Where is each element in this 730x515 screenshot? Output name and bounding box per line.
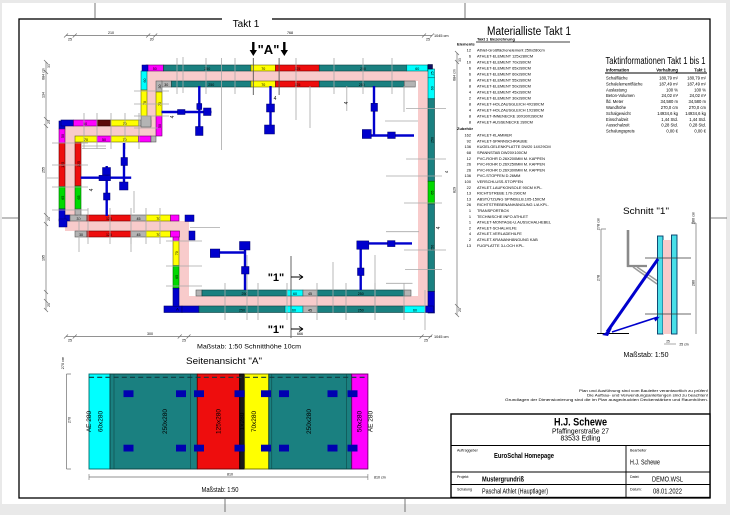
svg-text:Grundlagen der Dimensionierung: Grundlagen der Dimensionierung sind die … bbox=[505, 397, 708, 402]
svg-text:50: 50 bbox=[61, 134, 65, 138]
svg-text:Maßstab: 1:50: Maßstab: 1:50 bbox=[624, 352, 669, 359]
svg-text:Ausschalzeit: Ausschalzeit bbox=[606, 123, 630, 128]
svg-text:25: 25 bbox=[666, 340, 670, 344]
svg-text:250: 250 bbox=[359, 83, 365, 87]
svg-text:EuroSchal Homepage: EuroSchal Homepage bbox=[494, 453, 554, 460]
svg-text:250: 250 bbox=[208, 83, 214, 87]
svg-text:ATHLET-ELEMENT 30x280CM: ATHLET-ELEMENT 30x280CM bbox=[477, 96, 531, 101]
svg-text:25: 25 bbox=[68, 38, 72, 42]
svg-text:Schalgewicht: Schalgewicht bbox=[606, 111, 632, 116]
svg-text:50: 50 bbox=[102, 138, 106, 142]
svg-text:ATHLET-KLAMMER: ATHLET-KLAMMER bbox=[477, 133, 512, 138]
svg-text:270,0 cm: 270,0 cm bbox=[689, 105, 707, 110]
svg-text:45: 45 bbox=[137, 233, 141, 237]
svg-text:26: 26 bbox=[467, 162, 471, 167]
svg-text:1,44 Std.: 1,44 Std. bbox=[689, 117, 706, 122]
svg-text:33: 33 bbox=[458, 58, 462, 62]
svg-text:187,49 m²: 187,49 m² bbox=[687, 81, 706, 86]
svg-text:Vorhaltung: Vorhaltung bbox=[656, 68, 678, 73]
svg-text:250: 250 bbox=[204, 67, 210, 71]
svg-text:TECHNISCHE INFO ATHLET: TECHNISCHE INFO ATHLET bbox=[477, 214, 529, 219]
svg-text:A: A bbox=[176, 307, 179, 312]
svg-text:RICHTSTREBE 170-290CM: RICHTSTREBE 170-290CM bbox=[477, 191, 526, 196]
svg-text:100: 100 bbox=[465, 179, 472, 184]
svg-text:1: 1 bbox=[469, 214, 471, 219]
svg-text:Schnitt "1": Schnitt "1" bbox=[623, 206, 669, 217]
svg-text:14934,6 kg: 14934,6 kg bbox=[685, 111, 706, 116]
svg-text:250: 250 bbox=[430, 137, 434, 143]
svg-text:1045 cm: 1045 cm bbox=[434, 335, 449, 339]
svg-text:6: 6 bbox=[469, 66, 471, 71]
svg-text:20: 20 bbox=[47, 120, 51, 124]
svg-text:Athlet-Großflächenelement 250x: Athlet-Großflächenelement 250x280cm bbox=[477, 48, 545, 53]
svg-text:92: 92 bbox=[467, 138, 471, 143]
svg-text:8: 8 bbox=[469, 114, 471, 119]
svg-text:8: 8 bbox=[469, 78, 471, 83]
svg-text:Schalelementfläche: Schalelementfläche bbox=[606, 81, 643, 86]
svg-text:Schalung: Schalung bbox=[457, 488, 472, 492]
svg-text:24,02 m³: 24,02 m³ bbox=[661, 93, 678, 98]
svg-text:30: 30 bbox=[77, 217, 81, 221]
svg-text:12: 12 bbox=[467, 156, 471, 161]
svg-text:ATHLET-ELEMENT 50x280CM: ATHLET-ELEMENT 50x280CM bbox=[477, 84, 531, 89]
svg-text:810 cm: 810 cm bbox=[374, 476, 386, 480]
svg-text:6: 6 bbox=[469, 54, 471, 59]
svg-text:FUGPLATTE 3-LOCH KPL.: FUGPLATTE 3-LOCH KPL. bbox=[477, 243, 525, 248]
svg-text:PVC-ROHR D.26X200MM M. KAPPEN: PVC-ROHR D.26X200MM M. KAPPEN bbox=[477, 156, 545, 161]
svg-text:829: 829 bbox=[453, 187, 457, 193]
svg-text:70: 70 bbox=[175, 251, 179, 255]
svg-text:20: 20 bbox=[150, 38, 154, 42]
svg-text:Takt 1: Takt 1 bbox=[233, 19, 260, 30]
svg-text:60: 60 bbox=[413, 308, 417, 312]
svg-text:250: 250 bbox=[239, 308, 245, 312]
svg-text:45: 45 bbox=[137, 217, 141, 221]
svg-text:8: 8 bbox=[469, 120, 471, 125]
svg-text:83533 Edling: 83533 Edling bbox=[561, 434, 601, 443]
svg-text:25: 25 bbox=[430, 71, 434, 75]
svg-text:187,49 m²: 187,49 m² bbox=[659, 81, 678, 86]
svg-text:ATHLET-VERLADEHILFE: ATHLET-VERLADEHILFE bbox=[477, 231, 522, 236]
svg-text:100 %: 100 % bbox=[666, 87, 678, 92]
svg-text:SPANNSTAB DW20X100CM: SPANNSTAB DW20X100CM bbox=[477, 150, 527, 155]
svg-text:4: 4 bbox=[344, 101, 350, 104]
svg-text:Auslastung: Auslastung bbox=[606, 87, 627, 92]
svg-text:Datum:: Datum: bbox=[630, 488, 642, 492]
svg-text:60: 60 bbox=[292, 308, 296, 312]
svg-text:RICHTSTREBENANHÄNGUNG L/A KPL.: RICHTSTREBENANHÄNGUNG L/A KPL. bbox=[477, 202, 549, 207]
svg-text:Elemente: Elemente bbox=[457, 41, 476, 46]
svg-text:125: 125 bbox=[106, 217, 112, 221]
svg-text:684 cm: 684 cm bbox=[453, 69, 457, 81]
svg-text:ATHLET-SCHALHILFE: ATHLET-SCHALHILFE bbox=[477, 225, 517, 230]
svg-text:Takt 1: Takt 1 bbox=[694, 68, 706, 73]
svg-text:12: 12 bbox=[467, 48, 471, 53]
svg-text:50: 50 bbox=[153, 67, 157, 71]
svg-text:lfd. Meter: lfd. Meter bbox=[606, 99, 624, 104]
svg-text:ATHLET-ELEMENT 65x280CM: ATHLET-ELEMENT 65x280CM bbox=[477, 66, 531, 71]
svg-text:26: 26 bbox=[467, 167, 471, 172]
svg-text:Datei:: Datei: bbox=[630, 475, 639, 479]
svg-text:6: 6 bbox=[469, 72, 471, 77]
svg-text:68: 68 bbox=[467, 150, 471, 155]
svg-text:13: 13 bbox=[467, 191, 471, 196]
svg-text:0,28 Std.: 0,28 Std. bbox=[661, 123, 678, 128]
svg-text:50x280: 50x280 bbox=[357, 410, 364, 432]
svg-text:Taktinformationen Takt 1 bis: Taktinformationen Takt 1 bis 1 bbox=[606, 56, 706, 67]
svg-text:1: 1 bbox=[469, 208, 471, 213]
svg-text:25: 25 bbox=[182, 339, 186, 343]
svg-text:PVC-ROHR D.26X250MM M. KAPPEN: PVC-ROHR D.26X250MM M. KAPPEN bbox=[477, 162, 545, 167]
svg-text:1: 1 bbox=[469, 220, 471, 225]
svg-text:70: 70 bbox=[261, 83, 265, 87]
svg-text:26: 26 bbox=[467, 202, 471, 207]
svg-text:195: 195 bbox=[42, 255, 46, 261]
svg-text:VERSCHLUSS-STOPFEN: VERSCHLUSS-STOPFEN bbox=[477, 179, 523, 184]
svg-text:270,0 cm: 270,0 cm bbox=[661, 105, 679, 110]
svg-text:ATHLET-ELEMENT 70x280CM: ATHLET-ELEMENT 70x280CM bbox=[477, 60, 531, 65]
svg-text:125: 125 bbox=[106, 233, 112, 237]
svg-text:60: 60 bbox=[143, 79, 147, 83]
svg-text:ATHLET-ELEMENT 45x280CM: ATHLET-ELEMENT 45x280CM bbox=[477, 90, 531, 95]
svg-text:30: 30 bbox=[158, 85, 162, 89]
svg-text:25: 25 bbox=[458, 308, 462, 312]
svg-text:250: 250 bbox=[358, 308, 364, 312]
svg-text:KUGELGELENKPLATTE DW20 14X29CM: KUGELGELENKPLATTE DW20 14X29CM bbox=[477, 144, 551, 149]
svg-text:AE 280: AE 280 bbox=[367, 410, 374, 432]
svg-text:4: 4 bbox=[274, 96, 277, 102]
svg-text:Paschal Athlet (Hauptlager): Paschal Athlet (Hauptlager) bbox=[482, 489, 548, 496]
svg-text:Schalfläche: Schalfläche bbox=[606, 76, 628, 81]
svg-text:Zubehör: Zubehör bbox=[457, 126, 473, 131]
svg-text:65: 65 bbox=[77, 196, 81, 200]
svg-text:PVC-STOPFEN D.26MM: PVC-STOPFEN D.26MM bbox=[477, 173, 520, 178]
svg-text:ATHLET-ELEMENT 125x280CM: ATHLET-ELEMENT 125x280CM bbox=[477, 54, 533, 59]
svg-text:65: 65 bbox=[430, 191, 434, 195]
svg-text:134: 134 bbox=[42, 92, 46, 98]
svg-text:TRANSPORTBOX: TRANSPORTBOX bbox=[477, 208, 510, 213]
svg-text:ATHLET-HOLZAUSGLEICH 1X280CM: ATHLET-HOLZAUSGLEICH 1X280CM bbox=[477, 108, 544, 113]
svg-text:8: 8 bbox=[469, 102, 471, 107]
svg-text:70x280: 70x280 bbox=[251, 410, 258, 432]
svg-text:125: 125 bbox=[294, 83, 300, 87]
svg-text:136: 136 bbox=[465, 144, 472, 149]
svg-text:125x280: 125x280 bbox=[216, 409, 223, 434]
svg-text:AE 280: AE 280 bbox=[86, 410, 93, 432]
svg-text:DEMO.WSL: DEMO.WSL bbox=[652, 477, 683, 484]
svg-text:684 cm: 684 cm bbox=[42, 68, 46, 80]
svg-text:Takt 1: Takt 1 bbox=[477, 37, 489, 42]
svg-text:ABSTÜTZUNG SPINDELB.105-150CM: ABSTÜTZUNG SPINDELB.105-150CM bbox=[477, 196, 545, 201]
svg-text:278 cm: 278 cm bbox=[597, 218, 601, 230]
svg-text:4: 4 bbox=[436, 226, 442, 229]
svg-text:666: 666 bbox=[297, 332, 303, 336]
svg-text:250: 250 bbox=[358, 292, 364, 296]
svg-text:"1": "1" bbox=[268, 324, 285, 336]
svg-text:270 cm: 270 cm bbox=[61, 357, 65, 369]
svg-text:ATHLET-MONTAGE-U.AUSSCHALHEBEL: ATHLET-MONTAGE-U.AUSSCHALHEBEL bbox=[477, 220, 552, 225]
svg-text:ATHLET-INNENECKE 30X30X280CM: ATHLET-INNENECKE 30X30X280CM bbox=[477, 114, 543, 119]
svg-text:70: 70 bbox=[261, 67, 265, 71]
svg-text:Information: Information bbox=[606, 68, 629, 73]
svg-text:280 cm: 280 cm bbox=[692, 212, 696, 224]
svg-text:30: 30 bbox=[164, 83, 168, 87]
svg-text:34,580 m: 34,580 m bbox=[689, 99, 707, 104]
svg-text:Maßstab: 1:50 Schnitthöhe 10: Maßstab: 1:50 Schnitthöhe 10cm bbox=[197, 344, 301, 351]
svg-text:4: 4 bbox=[89, 188, 95, 191]
svg-text:PVC-ROHR D.26X300MM M. KAPPEN: PVC-ROHR D.26X300MM M. KAPPEN bbox=[477, 167, 545, 172]
svg-text:136: 136 bbox=[465, 173, 472, 178]
svg-text:25: 25 bbox=[424, 339, 428, 343]
svg-text:ATHLET-AUSSENECKE 280CM: ATHLET-AUSSENECKE 280CM bbox=[477, 120, 533, 125]
svg-text:13: 13 bbox=[467, 243, 471, 248]
svg-text:Projekt:: Projekt: bbox=[457, 475, 469, 479]
svg-text:25: 25 bbox=[426, 38, 430, 42]
svg-text:24,02 m³: 24,02 m³ bbox=[689, 93, 706, 98]
svg-text:45: 45 bbox=[308, 308, 312, 312]
svg-text:1,44 Std.: 1,44 Std. bbox=[661, 117, 678, 122]
svg-text:22: 22 bbox=[467, 185, 471, 190]
svg-text:278: 278 bbox=[597, 275, 601, 281]
svg-text:70: 70 bbox=[84, 138, 88, 142]
svg-text:125: 125 bbox=[294, 67, 300, 71]
svg-text:Beton-Volumen: Beton-Volumen bbox=[606, 93, 635, 98]
svg-text:65: 65 bbox=[61, 196, 65, 200]
svg-text:180,79 m²: 180,79 m² bbox=[687, 76, 706, 81]
svg-text:33: 33 bbox=[47, 64, 51, 68]
svg-text:25: 25 bbox=[68, 339, 72, 343]
svg-text:1045 cm: 1045 cm bbox=[434, 34, 449, 38]
svg-text:250x280: 250x280 bbox=[162, 409, 169, 434]
svg-text:162: 162 bbox=[465, 133, 472, 138]
svg-text:13: 13 bbox=[467, 196, 471, 201]
svg-text:2: 2 bbox=[469, 225, 471, 230]
svg-text:"1": "1" bbox=[268, 272, 285, 284]
svg-text:25: 25 bbox=[47, 217, 51, 221]
svg-text:300: 300 bbox=[147, 332, 153, 336]
svg-text:4: 4 bbox=[170, 115, 176, 118]
svg-text:125: 125 bbox=[77, 161, 81, 167]
svg-text:60: 60 bbox=[430, 86, 434, 90]
svg-text:255: 255 bbox=[42, 167, 46, 173]
svg-text:0,00 €: 0,00 € bbox=[694, 129, 706, 134]
svg-text:270: 270 bbox=[68, 417, 72, 423]
svg-text:50: 50 bbox=[158, 124, 162, 128]
svg-text:2: 2 bbox=[469, 237, 471, 242]
svg-text:45: 45 bbox=[308, 292, 312, 296]
svg-text:0,28 Std.: 0,28 Std. bbox=[689, 123, 706, 128]
svg-text:60: 60 bbox=[293, 292, 297, 296]
svg-text:250x280: 250x280 bbox=[306, 409, 313, 434]
svg-text:768: 768 bbox=[287, 31, 293, 35]
svg-text:60x280: 60x280 bbox=[98, 410, 105, 432]
svg-text:25: 25 bbox=[47, 303, 51, 307]
svg-text:60: 60 bbox=[415, 67, 419, 71]
svg-text:100 %: 100 % bbox=[694, 87, 706, 92]
svg-text:8: 8 bbox=[469, 84, 471, 89]
svg-text:Schalungspreis: Schalungspreis bbox=[606, 129, 635, 134]
svg-text:280: 280 bbox=[692, 280, 696, 286]
svg-text:Seitenansicht "A": Seitenansicht "A" bbox=[186, 356, 262, 367]
svg-text:ATHLET-SPANNSCHRAUBE: ATHLET-SPANNSCHRAUBE bbox=[477, 138, 528, 143]
svg-text:30: 30 bbox=[79, 233, 83, 237]
svg-text:65: 65 bbox=[175, 275, 179, 279]
svg-text:Mustergrundriß: Mustergrundriß bbox=[482, 477, 525, 484]
svg-text:2: 2 bbox=[469, 96, 471, 101]
svg-text:ATHLET-ELEMENT 55x280CM: ATHLET-ELEMENT 55x280CM bbox=[477, 78, 531, 83]
svg-text:Wandhöhe: Wandhöhe bbox=[606, 105, 627, 110]
svg-text:Auftraggeber: Auftraggeber bbox=[457, 449, 479, 453]
svg-text:25 cm: 25 cm bbox=[679, 343, 688, 347]
svg-text:34,580 m: 34,580 m bbox=[661, 99, 679, 104]
svg-text:810: 810 bbox=[227, 473, 233, 477]
svg-text:ATHLET-LAUFKONSOLE 90CM KPL.: ATHLET-LAUFKONSOLE 90CM KPL. bbox=[477, 185, 542, 190]
svg-text:ATHLET-HOLZAUSGLEICH 4X280CM: ATHLET-HOLZAUSGLEICH 4X280CM bbox=[477, 102, 544, 107]
svg-text:ATHLET-KRANANHÄNGUNG KAB: ATHLET-KRANANHÄNGUNG KAB bbox=[477, 237, 538, 242]
svg-text:Einschalzeit: Einschalzeit bbox=[606, 117, 629, 122]
svg-text:Maßstab: 1:50: Maßstab: 1:50 bbox=[202, 487, 239, 494]
svg-text:0,00 €: 0,00 € bbox=[666, 129, 678, 134]
svg-text:"A": "A" bbox=[258, 42, 280, 57]
svg-text:ATHLET-ELEMENT 60x280CM: ATHLET-ELEMENT 60x280CM bbox=[477, 72, 531, 77]
svg-text:14934,6 kg: 14934,6 kg bbox=[657, 111, 678, 116]
svg-text:H.J. Schewe: H.J. Schewe bbox=[630, 460, 660, 467]
svg-text:Bearbeiter: Bearbeiter bbox=[630, 449, 647, 453]
svg-text:Bezeichnung: Bezeichnung bbox=[490, 37, 515, 42]
svg-text:08.01.2022: 08.01.2022 bbox=[653, 489, 682, 496]
svg-text:180,79 m²: 180,79 m² bbox=[659, 76, 678, 81]
svg-text:210: 210 bbox=[108, 31, 114, 35]
